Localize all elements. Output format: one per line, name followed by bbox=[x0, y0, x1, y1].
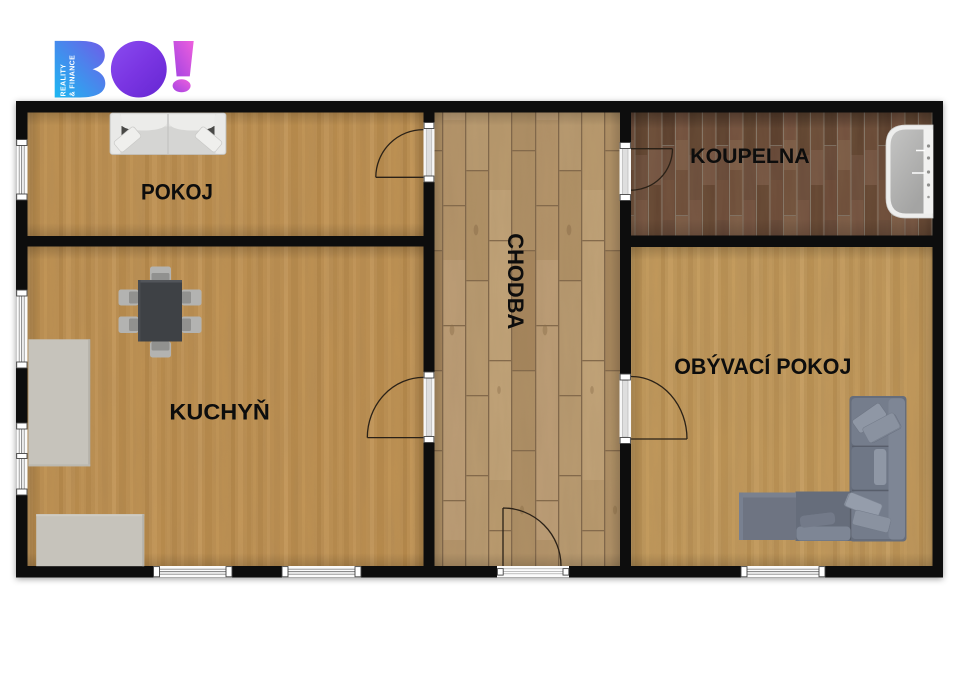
svg-text:OBÝVACÍ POKOJ: OBÝVACÍ POKOJ bbox=[674, 354, 851, 379]
svg-text:KOUPELNA: KOUPELNA bbox=[690, 145, 810, 168]
svg-text:CHODBA: CHODBA bbox=[503, 233, 528, 329]
svg-text:KUCHYŇ: KUCHYŇ bbox=[169, 400, 270, 425]
svg-text:REALITY: REALITY bbox=[61, 64, 68, 97]
svg-text:POKOJ: POKOJ bbox=[141, 179, 213, 204]
svg-text:& FINANCE: & FINANCE bbox=[70, 55, 77, 97]
